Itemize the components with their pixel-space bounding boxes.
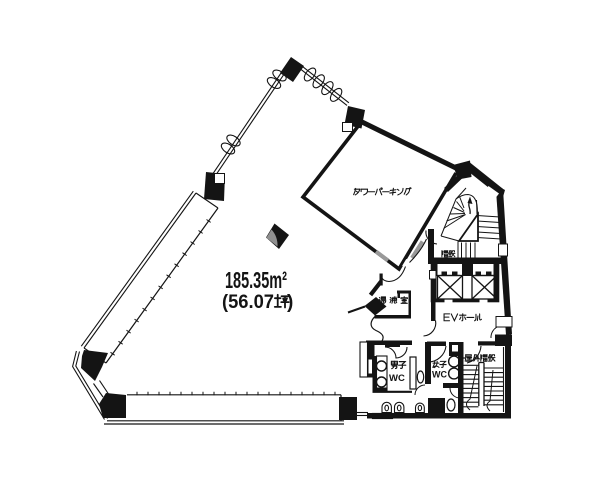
svg-text:WC: WC (389, 373, 405, 384)
svg-text:185.35m²: 185.35m² (225, 267, 287, 293)
svg-text:WC: WC (432, 370, 447, 380)
svg-text:): ) (287, 292, 293, 313)
svg-text:(56.07: (56.07 (222, 292, 274, 313)
